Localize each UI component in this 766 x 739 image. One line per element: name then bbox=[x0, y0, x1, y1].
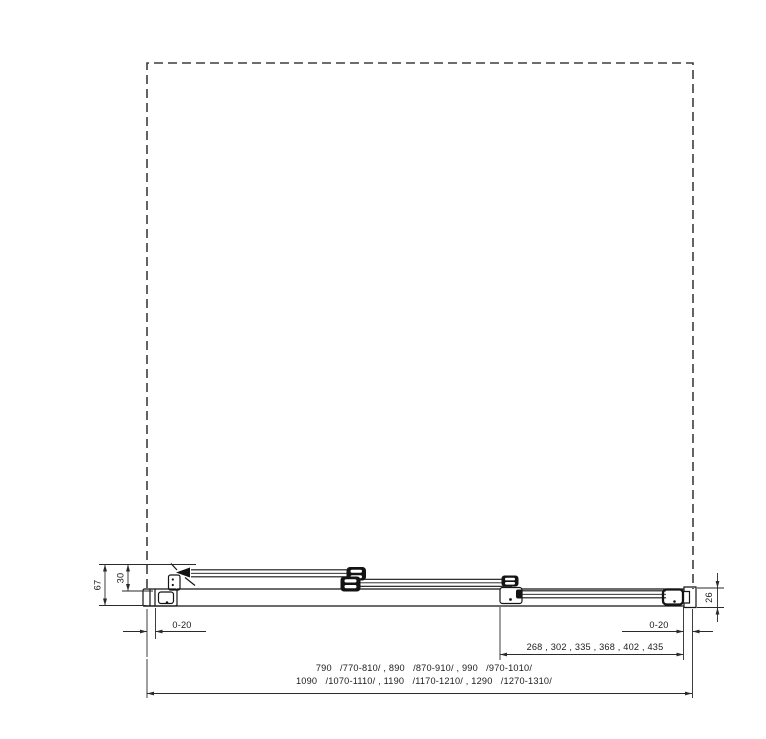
wall-profile-left-channel bbox=[150, 589, 155, 606]
dim-overall-label-line2: 1090 /1070-1110/ , 1190 /1170-1210/ , 12… bbox=[296, 676, 552, 686]
glass-clamp-seal-arrow bbox=[176, 568, 190, 578]
end-bracket-right-body bbox=[663, 590, 683, 605]
dim-020L-arrow-right bbox=[156, 630, 163, 634]
wall-profile-left bbox=[143, 589, 177, 606]
dim-overall-widths: 790 /770-810/ , 890 /870-910/ , 990 /970… bbox=[147, 659, 692, 698]
glass-panel-fixed bbox=[191, 570, 352, 577]
dim-020L-label: 0-20 bbox=[172, 620, 191, 630]
dim-overall-arrow-left bbox=[147, 692, 154, 696]
roller-bracket-2-body bbox=[341, 577, 361, 592]
dim-268-arrow-right bbox=[677, 653, 684, 657]
glass-clamp-screw-bottom bbox=[172, 584, 174, 586]
dim-total-height: 67 bbox=[93, 565, 108, 606]
dim-67-arrow-bottom bbox=[103, 599, 107, 606]
dim-020L-arrow-left bbox=[140, 630, 147, 634]
dim-020R-label: 0-20 bbox=[649, 620, 668, 630]
glass-panel-right bbox=[522, 591, 666, 598]
guide-bracket-middle-screw bbox=[509, 598, 512, 601]
dim-26-arrow-top bbox=[716, 581, 720, 588]
roller-bracket-3-body bbox=[502, 576, 519, 587]
wall-profile-left-screw bbox=[166, 601, 169, 604]
opening-outline-path bbox=[147, 63, 693, 589]
dim-020R-arrow-right bbox=[693, 630, 700, 634]
dim-26-arrow-bottom bbox=[716, 608, 720, 615]
roller-bracket-2 bbox=[341, 577, 361, 592]
dim-020R-arrow-left bbox=[677, 630, 684, 634]
dim-67-arrow-top bbox=[103, 565, 107, 572]
end-bracket-right bbox=[663, 590, 683, 605]
drawing-canvas: 67 30 26 0-20 bbox=[0, 0, 766, 739]
dim-profile-height: 26 bbox=[697, 573, 724, 622]
dimensions: 67 30 26 0-20 bbox=[93, 565, 725, 699]
technical-drawing-page: 67 30 26 0-20 bbox=[0, 0, 766, 739]
dim-30-label: 30 bbox=[116, 573, 126, 584]
dim-268-label: 268 , 302 , 335 , 368 , 402 , 435 bbox=[527, 642, 664, 652]
end-bracket-right-screw bbox=[673, 600, 676, 603]
dim-30-arrow-top bbox=[126, 565, 130, 572]
dim-wall-adjust-right: 0-20 bbox=[622, 607, 713, 698]
roller-bracket-3-slot-bottom bbox=[505, 582, 515, 585]
roller-bracket-1-slot-top bbox=[351, 570, 363, 573]
dim-268-arrow-left bbox=[500, 653, 507, 657]
dim-67-label: 67 bbox=[93, 580, 103, 591]
dim-clamp-height: 30 bbox=[116, 565, 131, 592]
roller-bracket-2-slot-top bbox=[345, 579, 357, 582]
dim-30-arrow-bottom bbox=[126, 584, 130, 591]
roller-bracket-2-slot-bottom bbox=[345, 585, 357, 588]
roller-bracket-3 bbox=[502, 576, 519, 587]
section-drawing bbox=[143, 564, 696, 608]
opening-outline bbox=[147, 63, 693, 589]
roller-bracket-3-slot-top bbox=[505, 578, 515, 581]
guide-bracket-middle bbox=[500, 588, 523, 604]
glass-clamp-screw-top bbox=[172, 578, 174, 580]
glass-clamp-body bbox=[169, 575, 181, 590]
dim-26-label: 26 bbox=[704, 592, 714, 603]
dim-overall-arrow-right bbox=[685, 692, 692, 696]
wall-profile-right bbox=[684, 587, 696, 608]
guide-bracket-middle-clip bbox=[516, 590, 523, 599]
dim-wall-adjust-left: 0-20 bbox=[123, 608, 206, 657]
glass-clamp-seal-lip-lower bbox=[185, 578, 195, 586]
dim-overall-label-line1: 790 /770-810/ , 890 /870-910/ , 990 /970… bbox=[316, 663, 533, 673]
glass-panel-middle bbox=[352, 579, 512, 586]
dim-panel-widths: 268 , 302 , 335 , 368 , 402 , 435 bbox=[500, 607, 684, 660]
